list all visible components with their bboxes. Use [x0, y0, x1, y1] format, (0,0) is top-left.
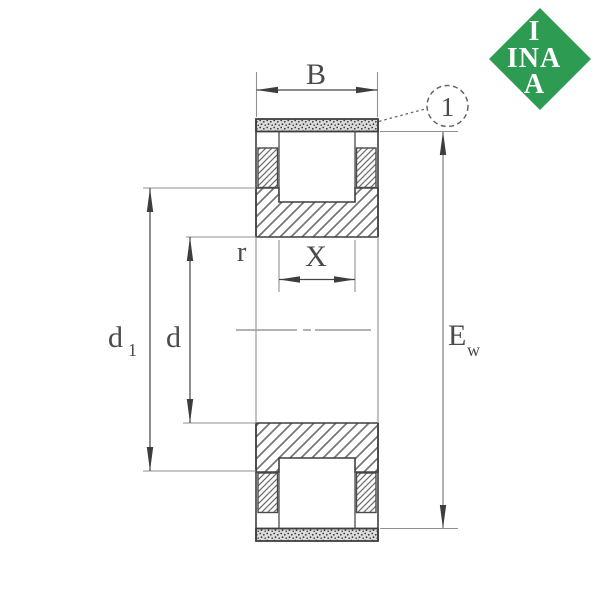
dim-x-arrow-left [279, 276, 300, 282]
roller-upper-right [357, 148, 377, 188]
dim-ew-extension-lines [380, 132, 458, 529]
dim-d1: d 1 [108, 188, 256, 471]
dim-x-arrow-right [334, 276, 355, 282]
roller-lower-right [357, 473, 377, 513]
dim-b-label: B [306, 58, 326, 91]
dim-d-arrow-bottom [187, 399, 193, 423]
inner-ring-lower-section [256, 423, 378, 472]
bearing-drawing: B X r d 1 d [0, 0, 600, 600]
roller-lower-left [258, 473, 278, 513]
callout-1-number: 1 [441, 92, 455, 122]
outer-ring-top-band [256, 119, 378, 132]
logo-letter-bottom: A [524, 69, 545, 100]
dim-d-arrow-top [187, 237, 193, 261]
dim-ew-label-subscript: w [467, 340, 480, 360]
dim-d1-label-base: d [108, 321, 123, 354]
roller-upper-left [258, 148, 278, 188]
dim-x: X [279, 240, 355, 292]
dim-ew: E w [380, 132, 480, 529]
dim-ew-label-base: E [448, 319, 466, 352]
dim-r-label: r [237, 237, 247, 268]
dim-d1-label-subscript: 1 [128, 340, 137, 360]
page: B X r d 1 d [0, 0, 600, 600]
dim-b: B [257, 58, 378, 117]
dim-x-label: X [305, 240, 327, 273]
dim-d1-arrow-bottom [147, 447, 153, 471]
dim-b-arrow-right [356, 87, 378, 93]
ina-logo: I INA A [489, 8, 591, 110]
dim-d1-arrow-top [147, 188, 153, 212]
outer-ring-bottom-band [256, 529, 378, 542]
callout-1: 1 [379, 86, 468, 127]
dim-ew-arrow-top [440, 132, 446, 156]
dim-d-label: d [166, 321, 181, 354]
inner-ring-upper-section [256, 188, 378, 237]
dim-b-arrow-left [257, 87, 279, 93]
callout-1-leader-line [379, 109, 428, 122]
dim-ew-arrow-bottom [440, 505, 446, 529]
